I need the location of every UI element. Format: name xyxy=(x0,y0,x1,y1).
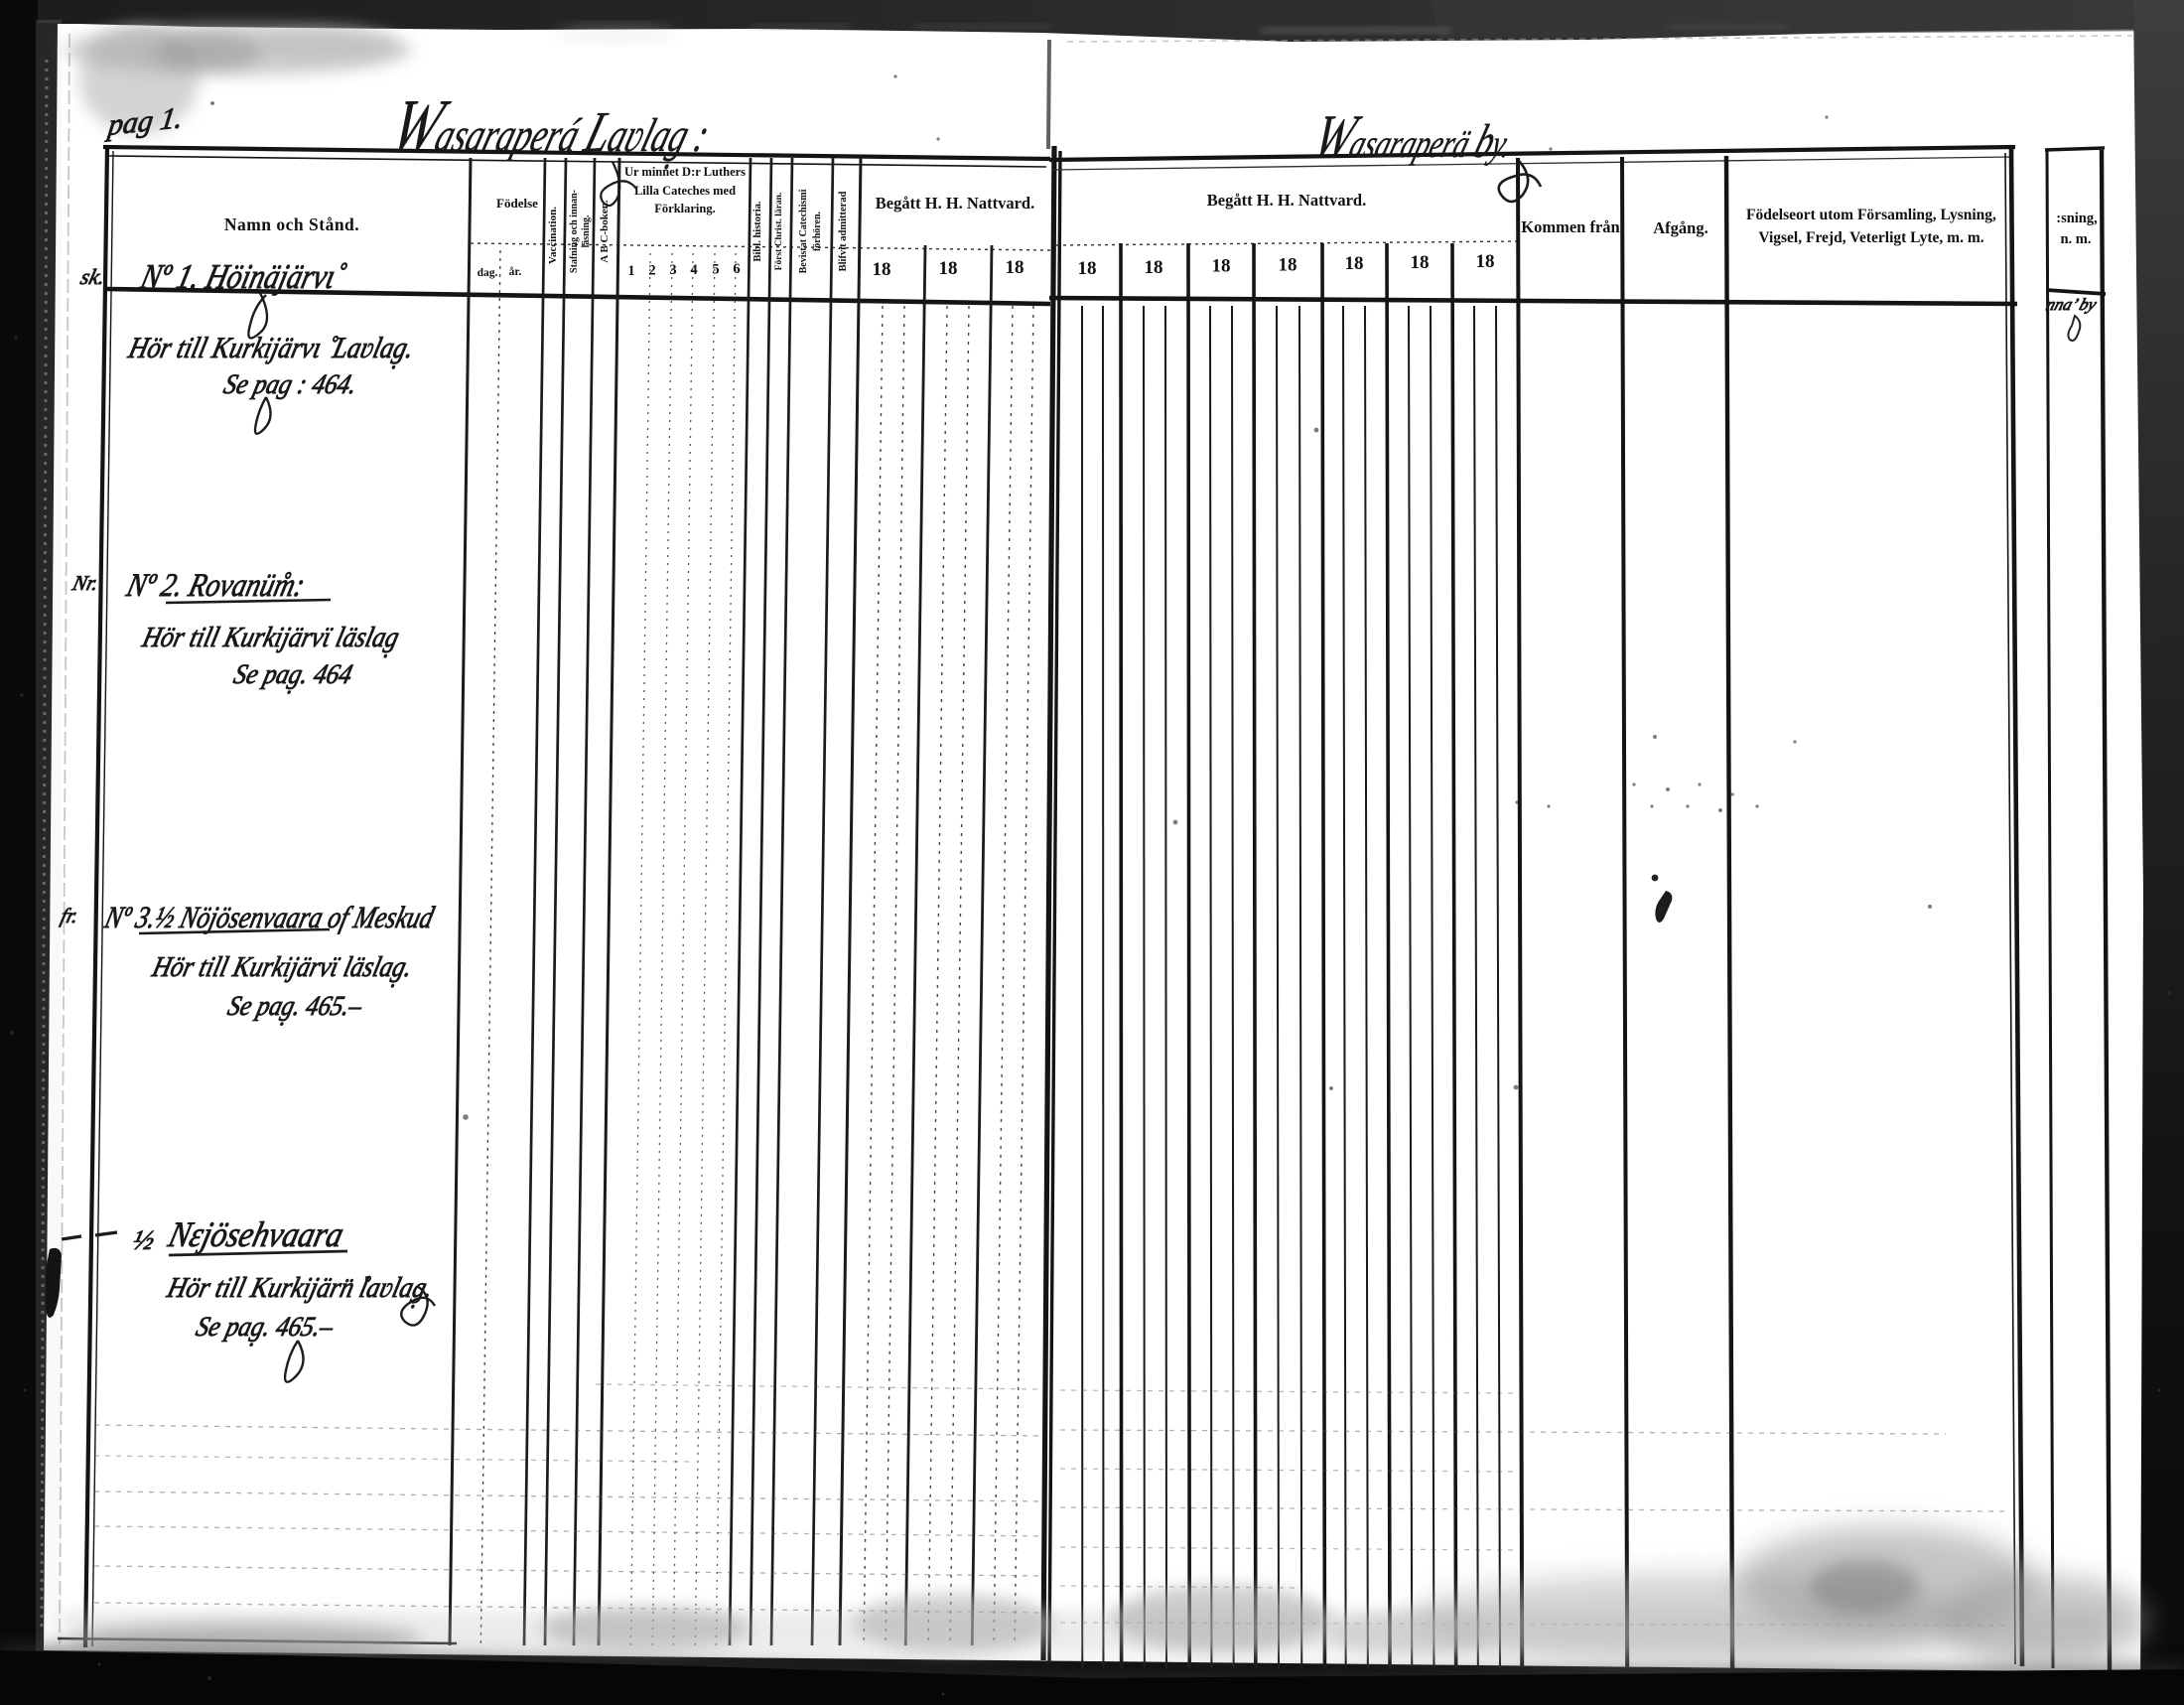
svg-text:Förklaring.: Förklaring. xyxy=(654,202,715,215)
svg-text:Kommen från: Kommen från xyxy=(1521,217,1619,236)
svg-text:Vaccination.: Vaccination. xyxy=(547,207,559,264)
svg-text:Födelse: Födelse xyxy=(496,196,538,211)
svg-text:Nº 1. Höinäjärvι̊: Nº 1. Höinäjärvι̊ xyxy=(136,258,349,296)
svg-text:1: 1 xyxy=(627,263,634,279)
svg-text:Lilla Cateches med: Lilla Cateches med xyxy=(634,184,736,198)
svg-text:18: 18 xyxy=(1345,253,1364,274)
svg-text:Bibl. historia.: Bibl. historia. xyxy=(752,201,763,261)
svg-text:dag.: dag. xyxy=(478,267,498,279)
svg-text:Hör till Kurkijärvϊ läslag̣: Hör till Kurkijärvϊ läslag̣ xyxy=(137,622,402,658)
svg-text:18: 18 xyxy=(1476,251,1495,272)
svg-text:18: 18 xyxy=(1078,258,1097,279)
svg-text:Blifvit admitterad: Blifvit admitterad xyxy=(838,191,849,271)
svg-text:18: 18 xyxy=(1145,257,1163,278)
svg-text:Begått H. H. Nattvard.: Begått H. H. Nattvard. xyxy=(1207,191,1366,210)
svg-text:läsning.: läsning. xyxy=(581,214,592,248)
svg-text:Bevistat Catechismi: Bevistat Catechismi xyxy=(798,189,809,273)
svg-text:18: 18 xyxy=(873,259,891,280)
svg-text:6: 6 xyxy=(733,261,740,277)
svg-text:Namn och Stånd.: Namn och Stånd. xyxy=(224,214,359,234)
svg-text:3: 3 xyxy=(669,262,676,278)
svg-text:Vigsel, Frejd, Veterligt Lyt: Vigsel, Frejd, Veterligt Lyte, m. m. xyxy=(1758,229,1983,246)
svg-text:2: 2 xyxy=(648,263,655,279)
svg-text:år.: år. xyxy=(509,266,522,278)
svg-text:Hör till Kurkijärn̈ ̊laʋlag̣.: Hör till Kurkijärn̈ ̊laʋlag̣. xyxy=(162,1272,436,1308)
svg-text:18: 18 xyxy=(1006,257,1024,278)
svg-text:5: 5 xyxy=(712,261,719,277)
svg-text:Se pag̣. 464: Se pag̣. 464 xyxy=(229,658,355,694)
svg-text:n. m.: n. m. xyxy=(2060,231,2091,247)
svg-text:nna’ by: nna’ by xyxy=(2044,294,2100,313)
svg-text:18: 18 xyxy=(1411,252,1430,273)
svg-text:Födelseort utom Församling, L: Födelseort utom Församling, Lysning, xyxy=(1746,207,1996,223)
svg-text:4: 4 xyxy=(690,262,697,278)
svg-text:Afgång.: Afgång. xyxy=(1653,218,1707,237)
svg-text:Hör till Kurkijärvϊ läslag̣: Hör till Kurkijärvϊ läslag̣. xyxy=(147,950,416,988)
svg-text:Nº 2. Rovanüm̊:: Nº 2. Rovanüm̊: xyxy=(122,566,309,603)
svg-text:Ur minnet D:r Luthers: Ur minnet D:r Luthers xyxy=(624,165,746,179)
svg-text:Hör till Kurkijärvι ̊ Laʋlag̣: Hör till Kurkijärvι ̊ Laʋlag̣. xyxy=(123,333,417,369)
svg-text:Se pag̣. 465.–: Se pag̣. 465.– xyxy=(223,990,366,1026)
svg-text:Se pag̣̣. 465.–: Se pag̣̣. 465.– xyxy=(192,1311,338,1347)
svg-text:Se pag : 464.: Se pag : 464. xyxy=(220,368,360,399)
svg-text:Först Christ. läran.: Först Christ. läran. xyxy=(774,193,784,271)
svg-text:Stafning och innan-: Stafning och innan- xyxy=(569,190,580,273)
svg-text:18: 18 xyxy=(939,258,958,279)
svg-text:förhören.: förhören. xyxy=(812,211,823,251)
svg-text:A B C-boken.: A B C-boken. xyxy=(599,200,611,263)
svg-text:18: 18 xyxy=(1279,254,1297,275)
svg-text:18: 18 xyxy=(1212,256,1231,277)
svg-text:Nɛjösehvaara: Nɛjösehvaara xyxy=(164,1215,347,1255)
svg-text::sning,: :sning, xyxy=(2056,211,2098,226)
svg-text:Begått H. H. Nattvard.: Begått H. H. Nattvard. xyxy=(876,194,1034,213)
